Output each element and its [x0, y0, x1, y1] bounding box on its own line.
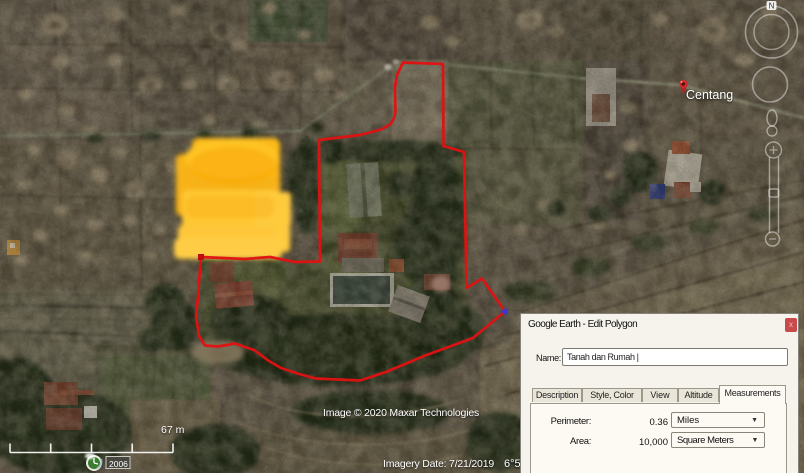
svg-text:N: N [769, 2, 775, 11]
